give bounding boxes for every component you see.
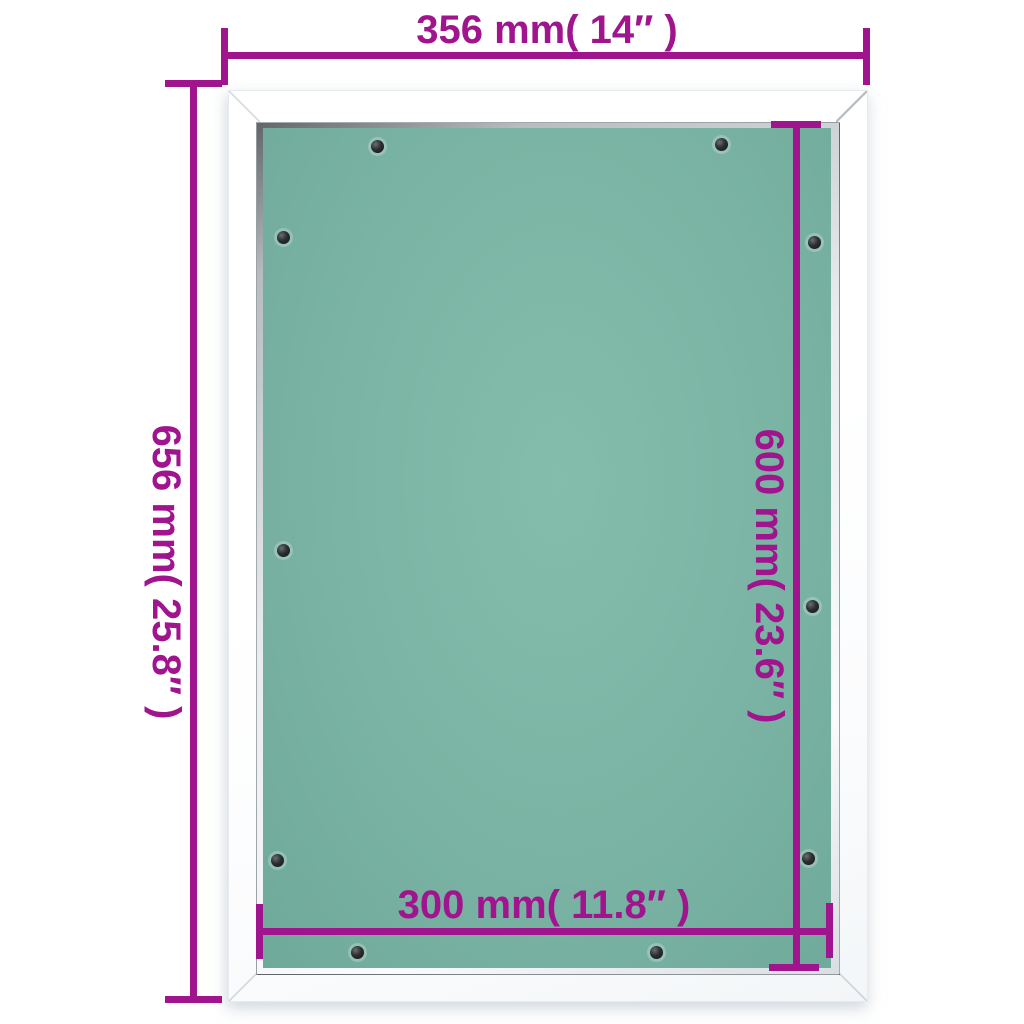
screw: [806, 600, 819, 613]
door-height-dimension-line: [793, 124, 800, 971]
screw: [715, 138, 728, 151]
plasterboard-door: [263, 128, 831, 968]
frame-width-label: 356 mm( 14″ ): [224, 9, 870, 51]
screw: [802, 852, 815, 865]
door-height-label: 600 mm( 23.6″ ): [748, 366, 790, 786]
door-width-dimension-line: [256, 928, 832, 935]
screw: [277, 231, 290, 244]
door-height-tick-bottom: [769, 964, 819, 971]
screw: [808, 236, 821, 249]
frame-width-dimension-line: [224, 52, 870, 59]
screw: [271, 854, 284, 867]
screw: [351, 946, 364, 959]
door-height-tick-top: [771, 121, 821, 128]
frame-height-tick-bottom: [165, 996, 222, 1003]
frame-miter-bottom-right: [836, 970, 867, 1001]
frame-miter-top-right: [836, 91, 867, 122]
frame-height-dimension-line: [190, 83, 197, 1003]
product-dimension-diagram: 356 mm( 14″ ) 656 mm( 25.8″ ) 600 mm( 23…: [0, 0, 1024, 1024]
frame-miter-top-left: [229, 91, 260, 122]
screw: [277, 544, 290, 557]
frame-height-tick-top: [165, 80, 222, 87]
door-width-label: 300 mm( 11.8″ ): [256, 884, 832, 926]
screw: [371, 140, 384, 153]
screw: [650, 946, 663, 959]
frame-height-label: 656 mm( 25.8″ ): [145, 362, 187, 782]
